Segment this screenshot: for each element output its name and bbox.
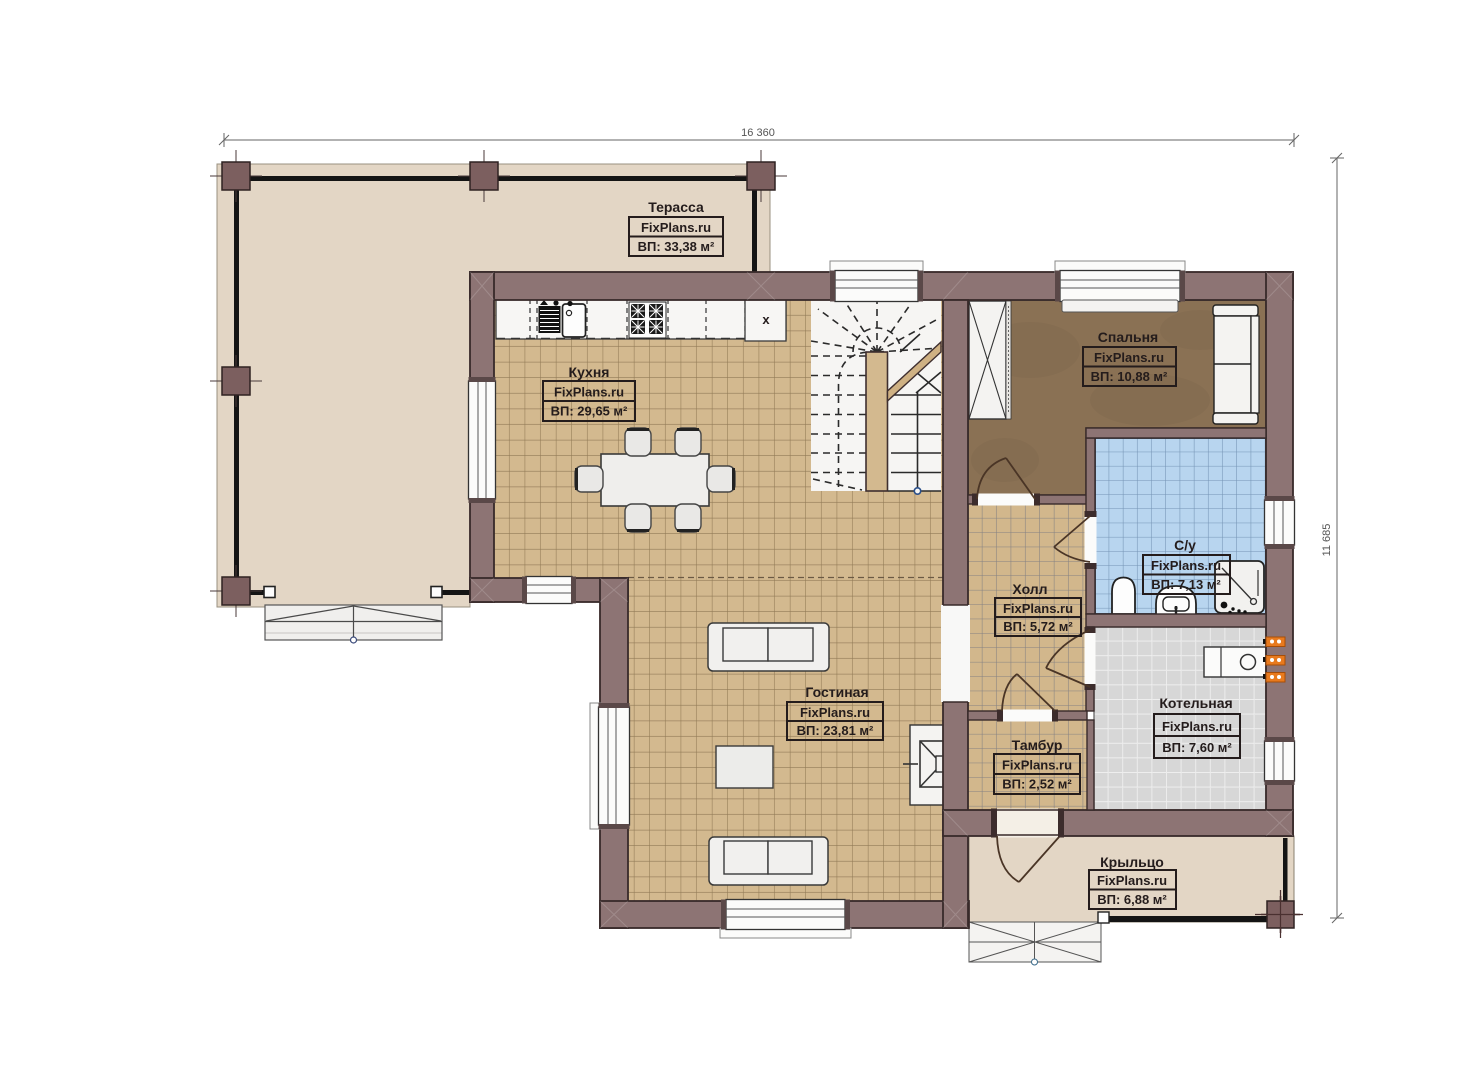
svg-text:ВП: 23,81 м²: ВП: 23,81 м² [797,723,874,738]
svg-text:ВП: 29,65 м²: ВП: 29,65 м² [551,404,628,419]
svg-text:Кухня: Кухня [569,364,610,380]
svg-text:FixPlans.ru: FixPlans.ru [641,220,711,235]
svg-text:Крыльцо: Крыльцо [1100,854,1164,870]
svg-text:ВП: 5,72 м²: ВП: 5,72 м² [1003,619,1073,634]
svg-text:Котельная: Котельная [1159,695,1232,711]
svg-text:Тамбур: Тамбур [1012,737,1063,753]
svg-text:FixPlans.ru: FixPlans.ru [1097,873,1167,888]
svg-text:Гостиная: Гостиная [805,684,868,700]
svg-text:С/у: С/у [1174,537,1196,553]
svg-text:16 360: 16 360 [741,127,775,139]
svg-text:Холл: Холл [1012,581,1047,597]
svg-text:FixPlans.ru: FixPlans.ru [1094,350,1164,365]
svg-text:Спальня: Спальня [1098,329,1158,345]
svg-text:11 685: 11 685 [1321,524,1333,557]
svg-text:FixPlans.ru: FixPlans.ru [1003,601,1073,616]
svg-text:ВП: 33,38 м²: ВП: 33,38 м² [638,239,715,254]
svg-text:ВП: 6,88 м²: ВП: 6,88 м² [1097,892,1167,907]
svg-text:FixPlans.ru: FixPlans.ru [1151,558,1221,573]
svg-text:ВП: 10,88 м²: ВП: 10,88 м² [1091,369,1168,384]
svg-text:Терасса: Терасса [648,199,704,215]
svg-text:FixPlans.ru: FixPlans.ru [1162,719,1232,734]
svg-text:FixPlans.ru: FixPlans.ru [800,705,870,720]
svg-text:FixPlans.ru: FixPlans.ru [554,385,624,400]
svg-text:FixPlans.ru: FixPlans.ru [1002,758,1072,773]
svg-text:ВП: 7,13 м²: ВП: 7,13 м² [1151,577,1221,592]
svg-text:ВП: 2,52 м²: ВП: 2,52 м² [1002,777,1072,792]
svg-text:x: x [762,312,770,327]
svg-text:ВП: 7,60 м²: ВП: 7,60 м² [1162,740,1232,755]
